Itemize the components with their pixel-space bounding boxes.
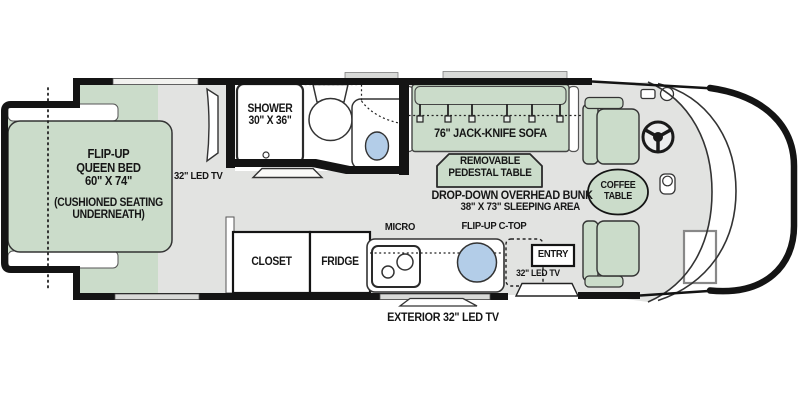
cooktop	[372, 246, 420, 287]
sofa-label: 76" JACK-KNIFE SOFA	[425, 127, 556, 140]
sofa-backrest	[415, 87, 566, 105]
bed-note-label: (CUSHIONED SEATING UNDERNEATH)	[34, 197, 183, 222]
driver-seat-band	[585, 276, 623, 287]
kitchen-sink-icon	[458, 243, 497, 282]
passenger-seat	[597, 109, 639, 164]
entry-tv-label: 32" LED TV	[510, 269, 566, 279]
shower-label: SHOWER 30" X 36"	[239, 103, 300, 128]
coffee-table-label: COFFEE TABLE	[592, 181, 644, 203]
shower-drain-icon	[263, 152, 269, 158]
sofa-armrest-right	[569, 87, 579, 152]
overhead-bunk-label: DROP-DOWN OVERHEAD BUNK 38" X 73" SLEEPI…	[432, 189, 581, 214]
passenger-seat-band	[585, 98, 623, 109]
entry-label: ENTRY	[533, 249, 573, 260]
entry-steps	[516, 284, 578, 297]
passenger-seat-back	[583, 104, 598, 164]
bathroom-door	[207, 89, 218, 161]
micro-label: MICRO	[378, 222, 421, 233]
bedroom-tv-icon	[253, 169, 322, 178]
fridge-label: FRIDGE	[313, 256, 367, 268]
toilet-icon	[309, 99, 352, 141]
exterior-tv-icon	[400, 299, 477, 307]
ctop-label: FLIP-UP C-TOP	[452, 221, 537, 232]
burner-icon	[382, 266, 394, 278]
entry-step-well	[684, 231, 716, 283]
bed-label: FLIP-UP QUEEN BED 60" X 74"	[34, 148, 183, 189]
closet-label: CLOSET	[237, 256, 306, 268]
driver-seat-back	[583, 221, 598, 281]
driver-seat	[597, 221, 639, 276]
pedestal-table-label: REMOVABLE PEDESTAL TABLE	[442, 156, 537, 180]
steering-wheel-icon	[643, 122, 673, 152]
wardrobe-cabinet-bottom	[8, 251, 118, 268]
console-cupholder	[660, 174, 675, 194]
burner-icon	[397, 254, 413, 270]
bathroom-sink-icon	[366, 132, 389, 160]
bedroom-tv-label: 32" LED TV	[174, 171, 237, 182]
bedroom-area	[6, 83, 172, 295]
dash-control	[641, 90, 655, 99]
rv-floor-plan: FLIP-UP QUEEN BED 60" X 74" (CUSHIONED S…	[0, 0, 800, 400]
roof-rail-segments	[345, 72, 567, 79]
exterior-tv-label: EXTERIOR 32" LED TV	[367, 311, 520, 324]
